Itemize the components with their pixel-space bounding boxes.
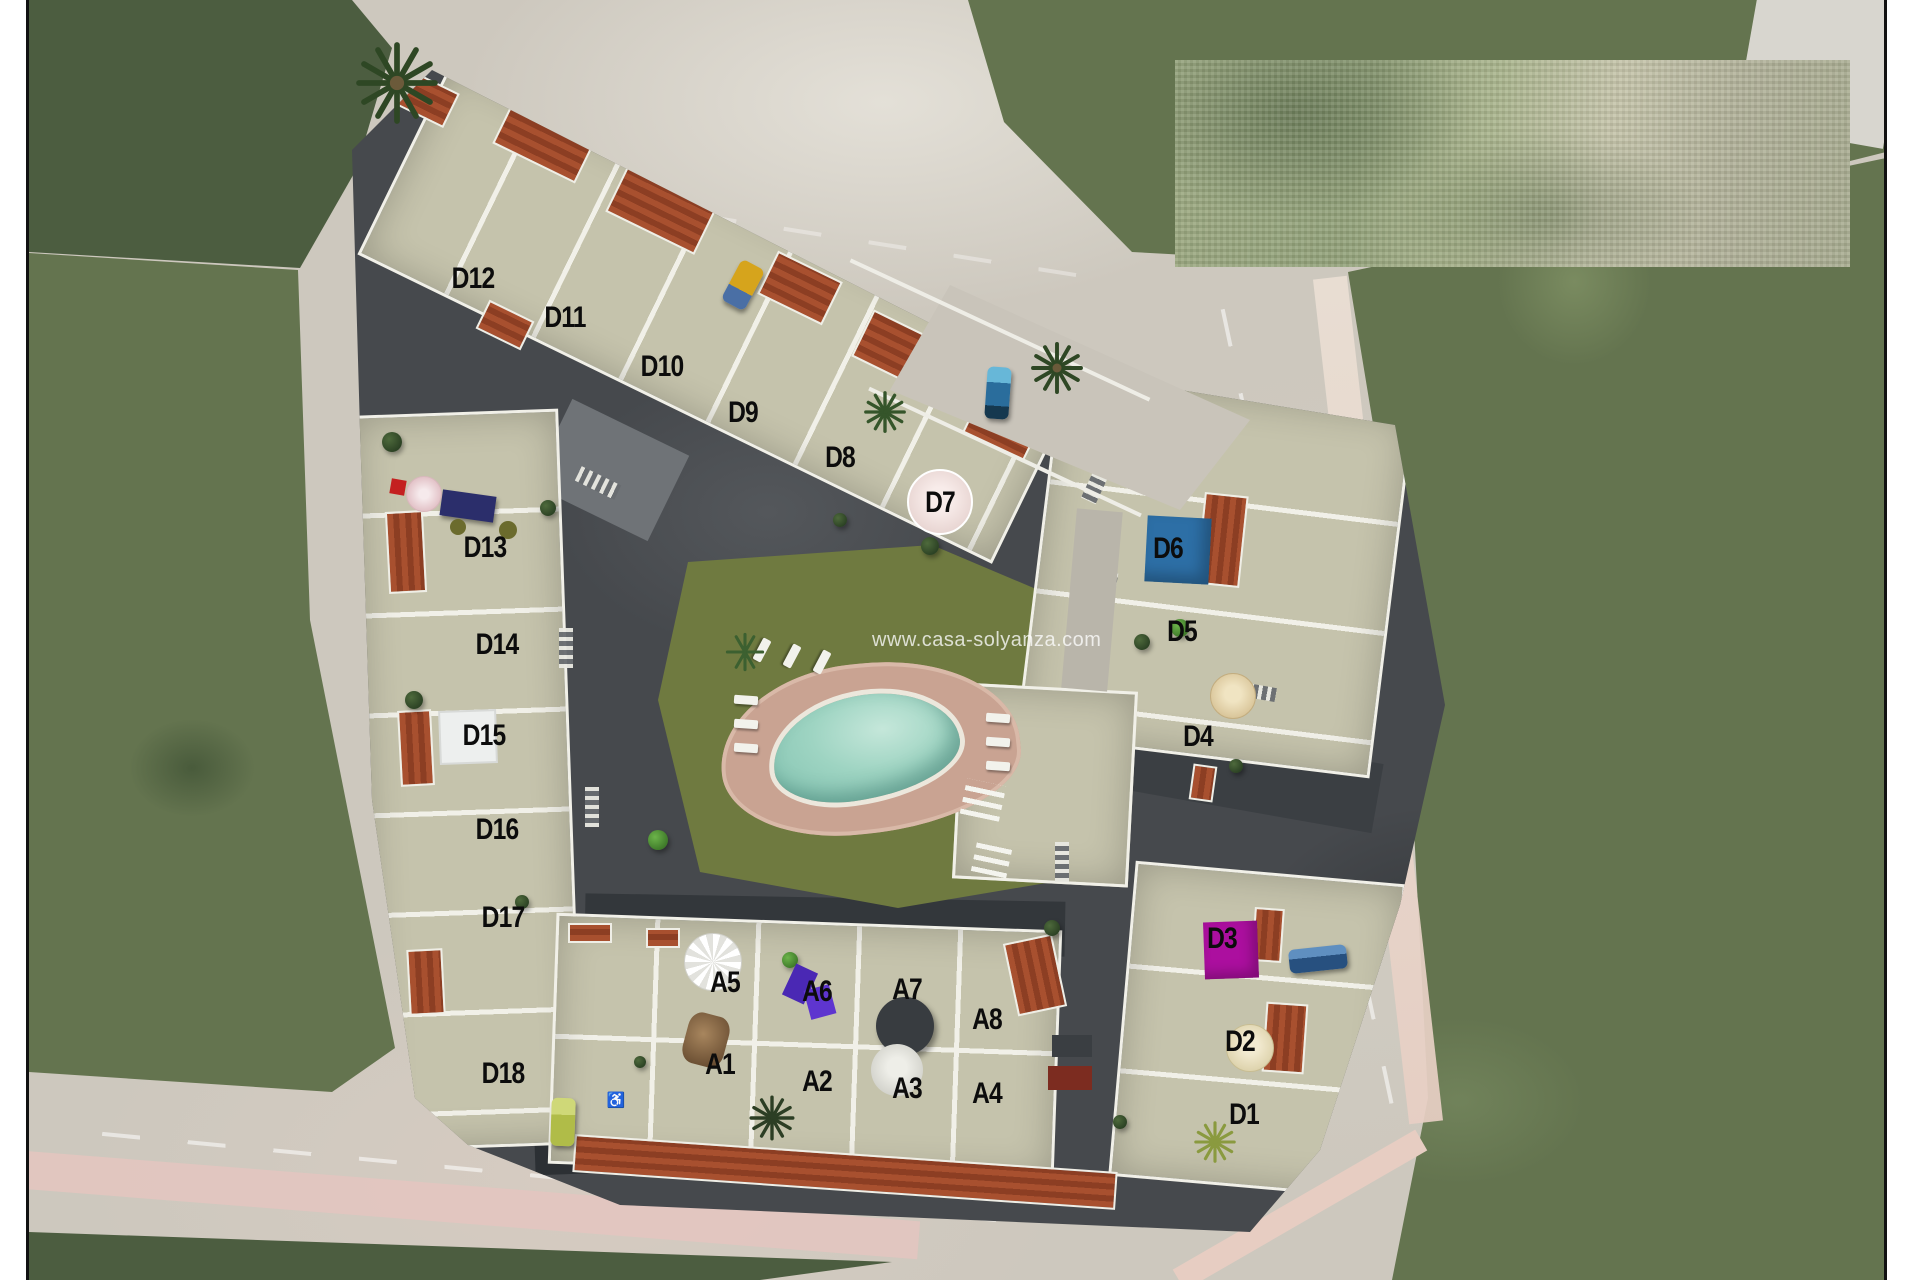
unit-label-d5: D5 xyxy=(1167,615,1197,649)
unit-label-a2: A2 xyxy=(802,1065,832,1099)
unit-label-d17: D17 xyxy=(482,901,525,935)
unit-label-a3: A3 xyxy=(892,1072,922,1106)
accessible-parking-icon: ♿ xyxy=(606,1091,626,1111)
unit-label-d1: D1 xyxy=(1229,1098,1259,1132)
bush xyxy=(382,432,402,452)
red-table xyxy=(389,478,406,495)
bush xyxy=(540,500,556,516)
terrace-sofa xyxy=(1048,1066,1092,1090)
bush xyxy=(405,691,423,709)
unit-label-d8: D8 xyxy=(825,441,855,475)
unit-label-d14: D14 xyxy=(476,628,519,662)
bush xyxy=(634,1056,646,1068)
terracotta-roof xyxy=(406,948,445,1016)
unit-label-a5: A5 xyxy=(710,966,740,1000)
unit-label-a4: A4 xyxy=(972,1077,1002,1111)
bush xyxy=(1113,1115,1127,1129)
terrace-furniture xyxy=(1052,1035,1092,1057)
bush xyxy=(921,537,939,555)
unit-label-a1: A1 xyxy=(705,1048,735,1082)
unit-label-d3: D3 xyxy=(1207,922,1237,956)
watermark: www.casa-solyanza.com xyxy=(872,629,1101,652)
unit-label-d11: D11 xyxy=(544,301,585,335)
palm-tree-icon xyxy=(861,388,909,436)
unit-label-d13: D13 xyxy=(464,531,507,565)
unit-label-d4: D4 xyxy=(1183,720,1213,754)
stairway xyxy=(1055,842,1069,882)
beige-parasol-icon xyxy=(1210,673,1256,719)
unit-label-d15: D15 xyxy=(463,719,506,753)
unit-label-d7: D7 xyxy=(925,486,955,520)
green-car xyxy=(550,1098,576,1147)
unit-label-a7: A7 xyxy=(892,973,922,1007)
unit-label-d18: D18 xyxy=(482,1057,525,1091)
sun-lounger xyxy=(986,737,1011,748)
unit-label-a8: A8 xyxy=(972,1003,1002,1037)
terracotta-roof xyxy=(385,510,427,594)
unit-label-d16: D16 xyxy=(476,813,519,847)
pink-parasol-icon xyxy=(406,476,442,512)
bush xyxy=(1229,759,1243,773)
unit-label-d2: D2 xyxy=(1225,1025,1255,1059)
unit-label-d12: D12 xyxy=(452,262,495,296)
terracotta-roof xyxy=(568,923,612,943)
bush xyxy=(648,830,668,850)
path-stripes xyxy=(971,838,1013,879)
blue-car xyxy=(984,366,1012,420)
unit-label-d9: D9 xyxy=(728,396,758,430)
page-margin-right xyxy=(1887,0,1920,1280)
unit-label-d6: D6 xyxy=(1153,532,1183,566)
sun-lounger xyxy=(734,695,759,706)
sun-lounger xyxy=(734,719,759,730)
bush xyxy=(1044,920,1060,936)
terracotta-roof xyxy=(646,928,680,948)
pixelation-texture xyxy=(1175,60,1850,267)
palm-tree-icon xyxy=(723,630,767,674)
palm-tree-icon xyxy=(746,1092,798,1144)
unit-label-a6: A6 xyxy=(802,975,832,1009)
unit-label-d10: D10 xyxy=(641,350,684,384)
stairway xyxy=(559,628,573,668)
palm-tree-icon xyxy=(1027,338,1087,398)
palm-tree-icon xyxy=(350,36,445,131)
aerial-site-plan: ♿ D12 D11 D10 D9 D8 D7 D13 D14 D15 D16 D… xyxy=(0,0,1920,1280)
sun-lounger xyxy=(986,713,1011,724)
stairway xyxy=(585,787,599,827)
terracotta-roof xyxy=(397,709,435,787)
frame-line-left xyxy=(26,0,29,1280)
terracotta-roof xyxy=(1189,764,1218,803)
bush xyxy=(1134,634,1150,650)
sun-lounger xyxy=(734,743,759,754)
blurred-image-patch xyxy=(1175,60,1850,267)
bush xyxy=(833,513,847,527)
sun-lounger xyxy=(986,761,1011,772)
page-margin-left xyxy=(0,0,26,1280)
